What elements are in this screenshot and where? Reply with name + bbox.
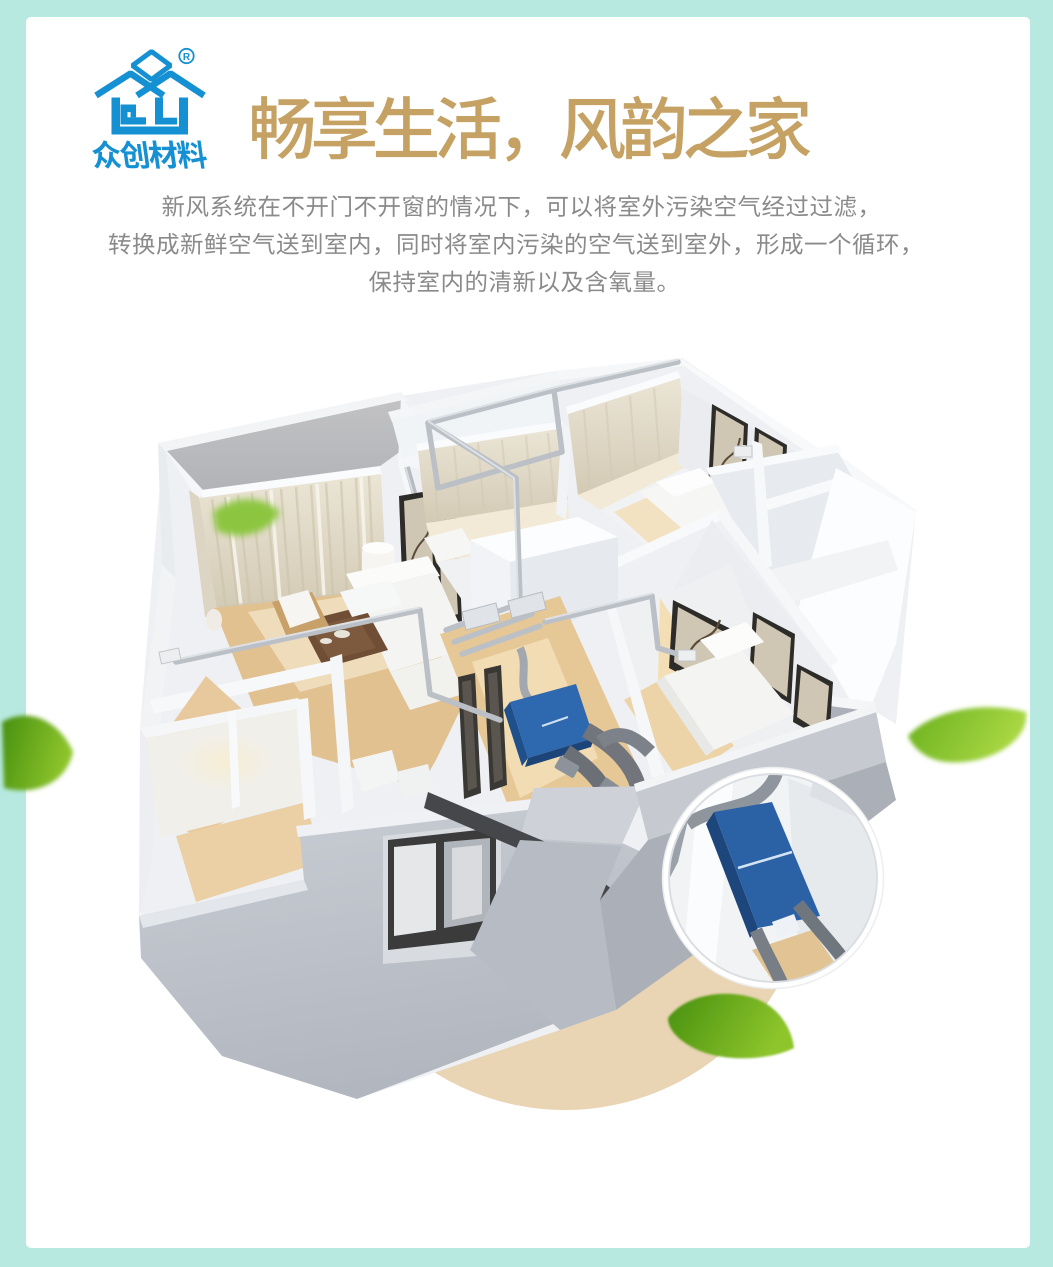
svg-text:R: R [183, 52, 191, 63]
